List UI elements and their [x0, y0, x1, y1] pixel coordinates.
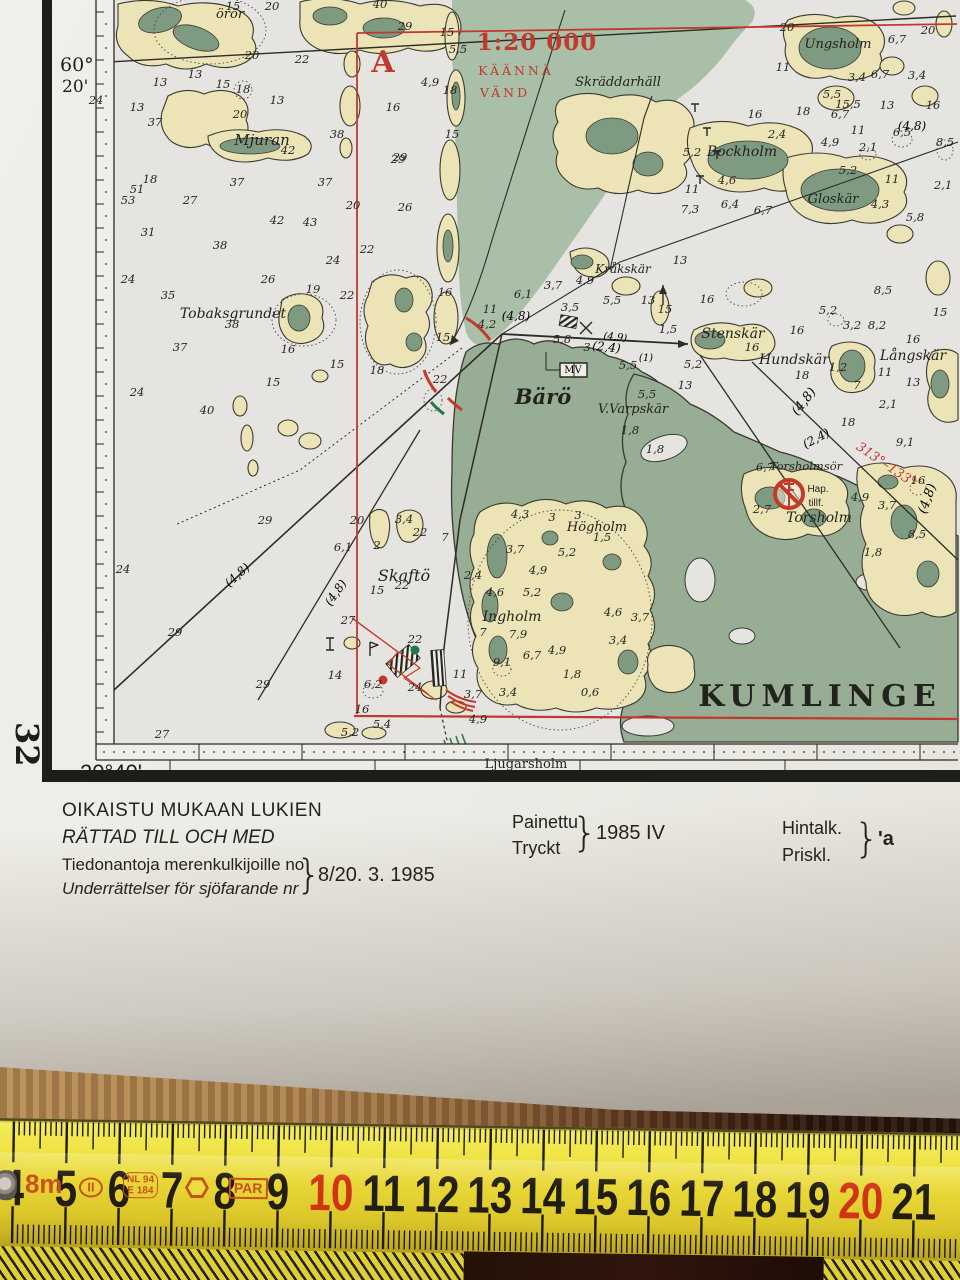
svg-text:4,6: 4,6 — [717, 173, 736, 187]
svg-text:16: 16 — [386, 100, 401, 114]
measuring-tape: 456789101112131415161718192021 8m II NL … — [0, 1118, 960, 1280]
svg-text:15: 15 — [436, 330, 451, 344]
nautical-chart: 1520402915202213131518131320373842291837… — [0, 0, 960, 800]
svg-text:6,7: 6,7 — [871, 67, 890, 81]
photo-of-nautical-chart: { "colors":{"chart_red":"#c0392e","mark_… — [0, 0, 960, 1280]
svg-text:16: 16 — [745, 340, 760, 354]
tape-unit-label: 8m — [25, 1168, 63, 1200]
svg-text:5,2: 5,2 — [523, 585, 541, 599]
svg-text:3: 3 — [583, 340, 590, 354]
latitude-degrees: 60° — [60, 54, 94, 76]
svg-text:A: A — [370, 45, 395, 80]
svg-text:13: 13 — [678, 378, 693, 392]
svg-text:42: 42 — [269, 213, 285, 227]
tape-edge-hatch-right — [823, 1259, 960, 1280]
svg-text:13: 13 — [270, 93, 285, 107]
svg-text:16: 16 — [438, 285, 453, 299]
svg-text:Kråkskär: Kråkskär — [594, 261, 652, 276]
svg-text:37: 37 — [148, 115, 163, 129]
svg-text:37: 37 — [230, 175, 245, 189]
svg-text:24: 24 — [129, 385, 145, 399]
svg-text:16: 16 — [926, 98, 941, 112]
tape-brand-label: PAR — [229, 1178, 268, 1200]
svg-text:15: 15 — [330, 357, 345, 371]
svg-text:3,7: 3,7 — [878, 498, 897, 512]
svg-text:Hundskär: Hundskär — [758, 352, 830, 368]
svg-text:Skräddarhäll: Skräddarhäll — [575, 75, 661, 90]
svg-text:Bärö: Bärö — [514, 384, 571, 409]
svg-text:38: 38 — [330, 127, 345, 141]
svg-text:13: 13 — [880, 98, 895, 112]
svg-text:2,1: 2,1 — [858, 140, 877, 154]
svg-text:18: 18 — [236, 82, 251, 96]
carpet-gap — [463, 1251, 824, 1280]
printed-brace: } — [572, 810, 597, 856]
svg-text:Ingholm: Ingholm — [482, 609, 542, 625]
svg-text:29: 29 — [392, 150, 408, 164]
notices-line-sv: Underrättelser för sjöfarande nr — [62, 879, 298, 899]
svg-text:22: 22 — [339, 288, 355, 302]
svg-text:4,2: 4,2 — [477, 317, 496, 331]
svg-text:16: 16 — [700, 292, 715, 306]
svg-text:Långskär: Långskär — [879, 347, 948, 364]
svg-text:9,1: 9,1 — [896, 435, 914, 449]
svg-text:1,8: 1,8 — [864, 545, 882, 559]
svg-text:3,2: 3,2 — [843, 318, 861, 332]
printed-sv: Tryckt — [512, 838, 560, 859]
svg-text:6,1: 6,1 — [334, 540, 352, 554]
svg-text:5,4: 5,4 — [373, 717, 391, 731]
price-fi: Hintalk. — [782, 818, 842, 839]
svg-text:4,3: 4,3 — [870, 197, 889, 211]
svg-text:2,7: 2,7 — [752, 502, 772, 516]
svg-text:22: 22 — [412, 525, 428, 539]
svg-text:3,4: 3,4 — [908, 68, 926, 82]
svg-text:29: 29 — [397, 19, 413, 33]
svg-text:6,7: 6,7 — [523, 648, 542, 662]
svg-text:29: 29 — [255, 677, 271, 691]
svg-text:20: 20 — [244, 48, 260, 62]
chart-paper: 1520402915202213131518131320373842291837… — [0, 0, 960, 1122]
svg-text:1,8: 1,8 — [621, 423, 639, 437]
svg-text:3,7: 3,7 — [544, 278, 563, 292]
svg-text:15: 15 — [933, 305, 948, 319]
svg-text:5,8: 5,8 — [906, 210, 924, 224]
svg-text:16: 16 — [355, 702, 370, 716]
svg-text:18: 18 — [143, 172, 158, 186]
svg-text:13: 13 — [673, 253, 688, 267]
svg-text:Torsholmsör: Torsholmsör — [770, 459, 844, 473]
svg-text:13: 13 — [641, 293, 656, 307]
tape-cert-label: NL 94 E 184 — [123, 1172, 158, 1199]
printed-fi: Painettu — [512, 812, 578, 833]
svg-text:2,4: 2,4 — [463, 568, 482, 582]
svg-text:Ungsholm: Ungsholm — [804, 37, 871, 52]
svg-text:31: 31 — [141, 225, 156, 239]
svg-text:15: 15 — [370, 583, 385, 597]
svg-text:Hap.: Hap. — [807, 484, 828, 495]
tape-end-rivet — [0, 1170, 17, 1200]
svg-text:26: 26 — [260, 272, 276, 286]
svg-text:7: 7 — [479, 625, 487, 639]
svg-text:24: 24 — [88, 93, 104, 107]
svg-text:11: 11 — [776, 60, 791, 74]
svg-text:16: 16 — [281, 342, 296, 356]
svg-text:7,9: 7,9 — [509, 627, 527, 641]
svg-text:0,6: 0,6 — [581, 685, 599, 699]
svg-text:18: 18 — [443, 83, 458, 97]
svg-text:5,5: 5,5 — [619, 358, 637, 372]
svg-text:6,7: 6,7 — [754, 203, 773, 217]
svg-text:11: 11 — [685, 182, 700, 196]
svg-text:(4,8): (4,8) — [898, 119, 927, 133]
svg-text:24: 24 — [325, 253, 341, 267]
svg-text:22: 22 — [294, 52, 310, 66]
svg-text:3,4: 3,4 — [395, 512, 413, 526]
svg-text:6,7: 6,7 — [831, 107, 850, 121]
svg-text:tillf.: tillf. — [809, 498, 824, 509]
svg-text:15: 15 — [216, 77, 231, 91]
svg-text:1,2: 1,2 — [829, 360, 847, 374]
price-sv: Priskl. — [782, 845, 831, 866]
svg-text:5,2: 5,2 — [558, 545, 576, 559]
svg-text:40: 40 — [199, 403, 215, 417]
svg-text:8,5: 8,5 — [874, 283, 892, 297]
svg-text:5,2: 5,2 — [839, 163, 857, 177]
svg-text:13: 13 — [906, 375, 921, 389]
svg-text:18: 18 — [841, 415, 856, 429]
svg-text:11: 11 — [483, 302, 498, 316]
fairway-mark — [559, 315, 578, 329]
svg-text:20: 20 — [345, 198, 361, 212]
svg-text:22: 22 — [432, 372, 448, 386]
svg-text:KUMLINGE: KUMLINGE — [698, 679, 941, 714]
svg-text:2: 2 — [372, 538, 380, 552]
svg-text:18: 18 — [796, 104, 811, 118]
svg-text:2,1: 2,1 — [878, 397, 897, 411]
svg-text:8,5: 8,5 — [936, 135, 954, 149]
svg-text:27: 27 — [340, 613, 356, 627]
svg-text:18: 18 — [795, 368, 810, 382]
svg-text:3,4: 3,4 — [499, 685, 517, 699]
svg-text:11: 11 — [453, 667, 468, 681]
svg-text:24: 24 — [407, 680, 423, 694]
svg-text:5,2: 5,2 — [684, 357, 702, 371]
svg-text:37: 37 — [173, 340, 188, 354]
svg-text:6,4: 6,4 — [721, 197, 739, 211]
svg-text:4,9: 4,9 — [468, 712, 487, 726]
svg-text:2,1: 2,1 — [933, 178, 952, 192]
svg-text:2,4: 2,4 — [767, 127, 786, 141]
svg-text:3,5: 3,5 — [561, 300, 579, 314]
svg-text:6,2: 6,2 — [364, 677, 382, 691]
svg-text:4,9: 4,9 — [420, 75, 439, 89]
svg-text:7: 7 — [853, 378, 861, 392]
svg-text:15: 15 — [440, 25, 455, 39]
latitude-minutes: 20' — [62, 77, 88, 97]
svg-text:20: 20 — [349, 513, 365, 527]
svg-text:4,3: 4,3 — [510, 507, 529, 521]
svg-text:15: 15 — [266, 375, 281, 389]
svg-text:7: 7 — [441, 530, 449, 544]
svg-text:Gloskär: Gloskär — [808, 192, 860, 207]
svg-text:29: 29 — [257, 513, 273, 527]
svg-text:Bockholm: Bockholm — [706, 144, 777, 160]
svg-text:37: 37 — [318, 175, 333, 189]
svg-text:24: 24 — [120, 272, 136, 286]
svg-text:1,8: 1,8 — [563, 667, 581, 681]
svg-text:5,5: 5,5 — [603, 293, 621, 307]
svg-text:Högholm: Högholm — [566, 520, 627, 535]
sheet-number: 32 — [8, 722, 46, 767]
svg-text:Ljugarsholm: Ljugarsholm — [485, 757, 568, 772]
svg-text:11: 11 — [885, 172, 900, 186]
svg-text:16: 16 — [790, 323, 805, 337]
svg-text:3,7: 3,7 — [464, 687, 483, 701]
svg-text:4,9: 4,9 — [547, 643, 566, 657]
svg-text:4,6: 4,6 — [603, 605, 622, 619]
svg-text:3,4: 3,4 — [609, 633, 627, 647]
tape-cm-number: 21 — [883, 1171, 946, 1232]
svg-text:5,5: 5,5 — [449, 42, 467, 56]
corrected-line-fi: OIKAISTU MUKAAN LUKIEN — [62, 800, 322, 822]
svg-text:26: 26 — [397, 200, 413, 214]
svg-text:6,7: 6,7 — [888, 32, 907, 46]
svg-text:3,4: 3,4 — [848, 70, 866, 84]
svg-text:20: 20 — [920, 23, 936, 37]
svg-text:20: 20 — [779, 20, 795, 34]
svg-text:53: 53 — [121, 193, 136, 207]
svg-text:18: 18 — [370, 363, 385, 377]
svg-text:5,8: 5,8 — [553, 332, 571, 346]
svg-text:11: 11 — [851, 123, 866, 137]
svg-text:Torsholm: Torsholm — [786, 510, 852, 526]
printed-value: 1985 IV — [596, 822, 665, 845]
svg-text:4,9: 4,9 — [850, 490, 869, 504]
svg-text:8,5: 8,5 — [908, 527, 926, 541]
svg-text:22: 22 — [407, 632, 423, 646]
svg-text:1,5: 1,5 — [659, 322, 677, 336]
svg-text:(1): (1) — [639, 353, 653, 364]
svg-text:1:20 000: 1:20 000 — [477, 29, 598, 56]
svg-text:13: 13 — [153, 75, 168, 89]
svg-text:Stenskär: Stenskär — [701, 326, 766, 342]
svg-text:MV: MV — [564, 365, 582, 376]
svg-text:43: 43 — [302, 215, 318, 229]
svg-text:9,1: 9,1 — [493, 655, 511, 669]
svg-text:(4,8): (4,8) — [502, 309, 531, 323]
svg-text:4,6: 4,6 — [485, 585, 504, 599]
longitude-label: 20°40' — [80, 760, 142, 785]
svg-text:5,2: 5,2 — [683, 145, 701, 159]
svg-text:15: 15 — [658, 302, 673, 316]
svg-text:15: 15 — [445, 127, 460, 141]
svg-text:3: 3 — [548, 510, 555, 524]
svg-text:19: 19 — [306, 282, 321, 296]
price-value: 'a — [878, 828, 894, 851]
svg-text:13: 13 — [130, 100, 145, 114]
svg-text:Tobaksgrundet: Tobaksgrundet — [180, 306, 287, 322]
svg-text:27: 27 — [182, 193, 198, 207]
svg-text:16: 16 — [906, 332, 921, 346]
corrected-line-sv: RÄTTAD TILL OCH MED — [62, 827, 275, 849]
svg-text:8,2: 8,2 — [868, 318, 886, 332]
svg-text:11: 11 — [878, 365, 893, 379]
svg-text:20: 20 — [232, 107, 248, 121]
svg-text:16: 16 — [748, 107, 763, 121]
svg-text:4,9: 4,9 — [528, 563, 547, 577]
svg-text:1,8: 1,8 — [646, 442, 664, 456]
price-brace: } — [854, 816, 879, 862]
svg-text:38: 38 — [213, 238, 228, 252]
svg-text:14: 14 — [328, 668, 343, 682]
notices-line-fi: Tiedonantoja merenkulkijoille no — [62, 855, 304, 875]
svg-text:24: 24 — [115, 562, 131, 576]
svg-text:5,5: 5,5 — [638, 387, 656, 401]
svg-text:27: 27 — [154, 727, 170, 741]
svg-text:4,9: 4,9 — [820, 135, 839, 149]
svg-text:6,1: 6,1 — [514, 287, 532, 301]
svg-text:20: 20 — [264, 0, 280, 13]
svg-text:VÄND: VÄND — [479, 84, 530, 100]
svg-text:KÄÄNNÄ: KÄÄNNÄ — [478, 62, 554, 78]
svg-text:örör: örör — [216, 7, 245, 22]
svg-text:22: 22 — [359, 242, 375, 256]
svg-text:V.Varpskär: V.Varpskär — [598, 402, 669, 417]
svg-text:Mjuran: Mjuran — [233, 131, 289, 149]
svg-text:13: 13 — [188, 67, 203, 81]
svg-text:4,9: 4,9 — [575, 273, 594, 287]
svg-text:Skaftö: Skaftö — [378, 566, 430, 585]
svg-text:3,7: 3,7 — [506, 542, 525, 556]
svg-text:35: 35 — [161, 288, 176, 302]
svg-text:5,2: 5,2 — [341, 725, 359, 739]
svg-text:5,2: 5,2 — [819, 303, 837, 317]
svg-text:7,3: 7,3 — [681, 202, 699, 216]
svg-text:40: 40 — [372, 0, 388, 11]
notices-value: 8/20. 3. 1985 — [318, 864, 435, 887]
svg-text:29: 29 — [167, 625, 183, 639]
svg-text:3,7: 3,7 — [631, 610, 650, 624]
